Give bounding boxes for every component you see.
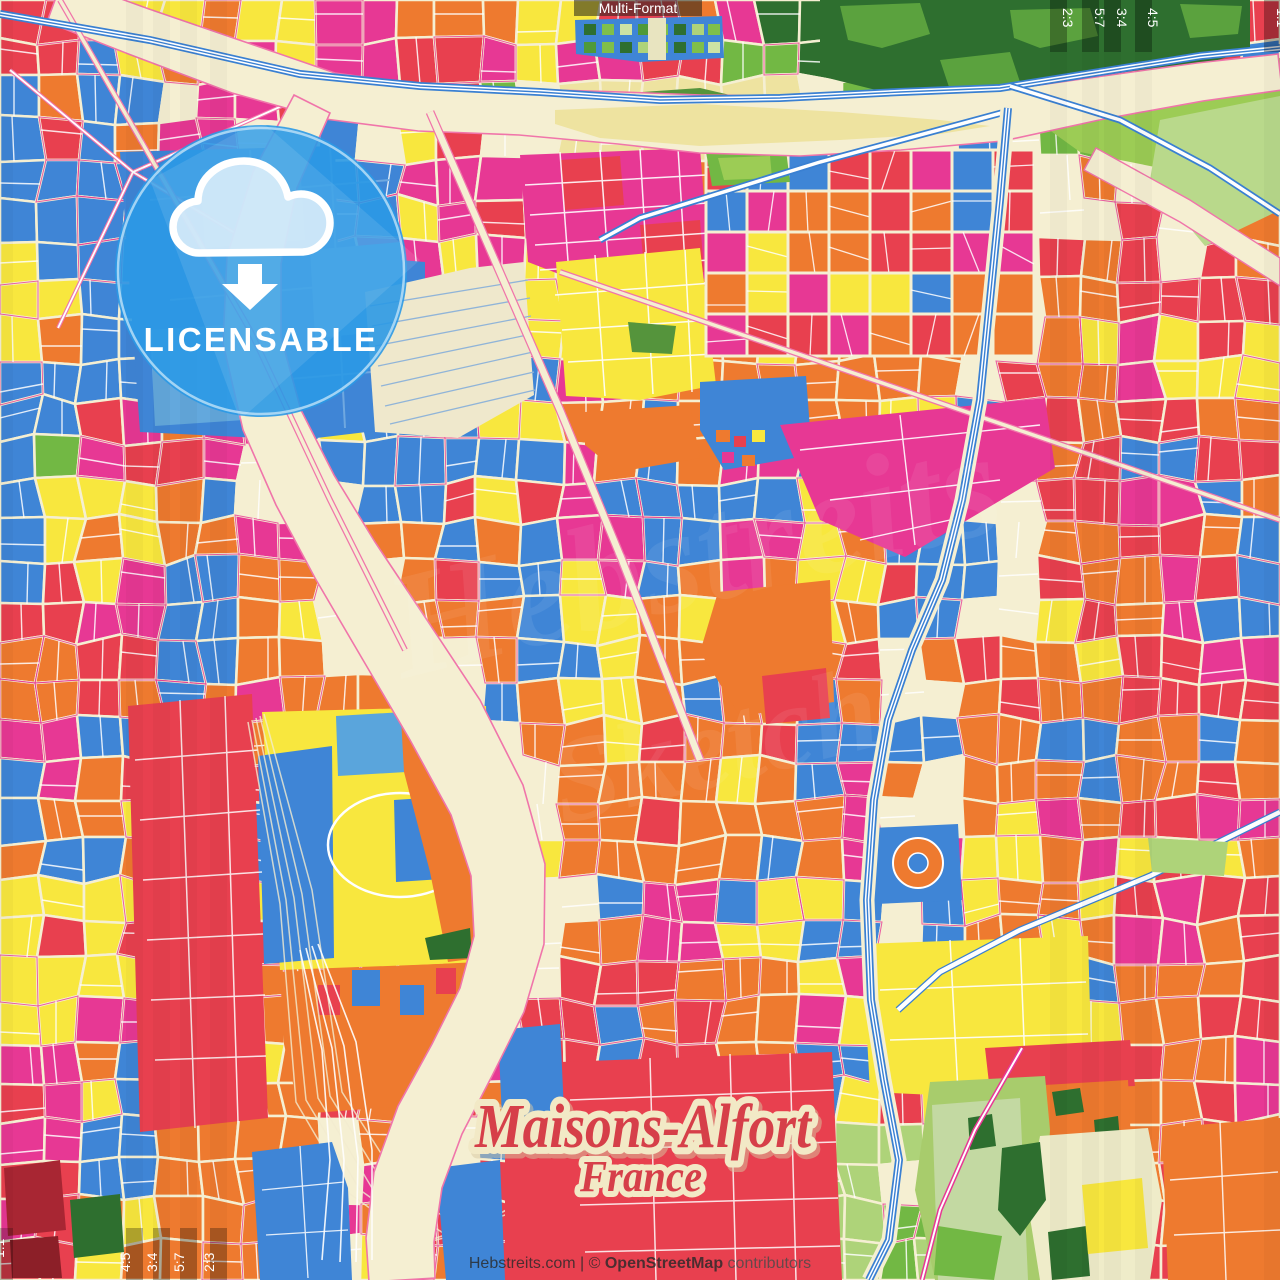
svg-text:1:1: 1:1 [0, 1238, 7, 1258]
svg-text:France: France [579, 1152, 702, 1201]
svg-text:Maisons-Alfort: Maisons-Alfort [474, 1093, 812, 1161]
svg-text:4:5: 4:5 [1145, 8, 1161, 28]
svg-text:3:4: 3:4 [144, 1252, 160, 1272]
svg-text:Multi-Format: Multi-Format [599, 0, 678, 16]
svg-text:4:5: 4:5 [117, 1252, 133, 1272]
svg-text:3:4: 3:4 [1114, 8, 1130, 28]
svg-text:2:3: 2:3 [1060, 8, 1076, 28]
svg-text:Hebstreits.com | © OpenStreetM: Hebstreits.com | © OpenStreetMap contrib… [469, 1255, 811, 1272]
svg-text:LICENSABLE: LICENSABLE [144, 321, 379, 358]
svg-text:5:7: 5:7 [171, 1252, 187, 1272]
svg-text:2:3: 2:3 [201, 1252, 217, 1272]
svg-text:1:1: 1:1 [1274, 8, 1280, 28]
